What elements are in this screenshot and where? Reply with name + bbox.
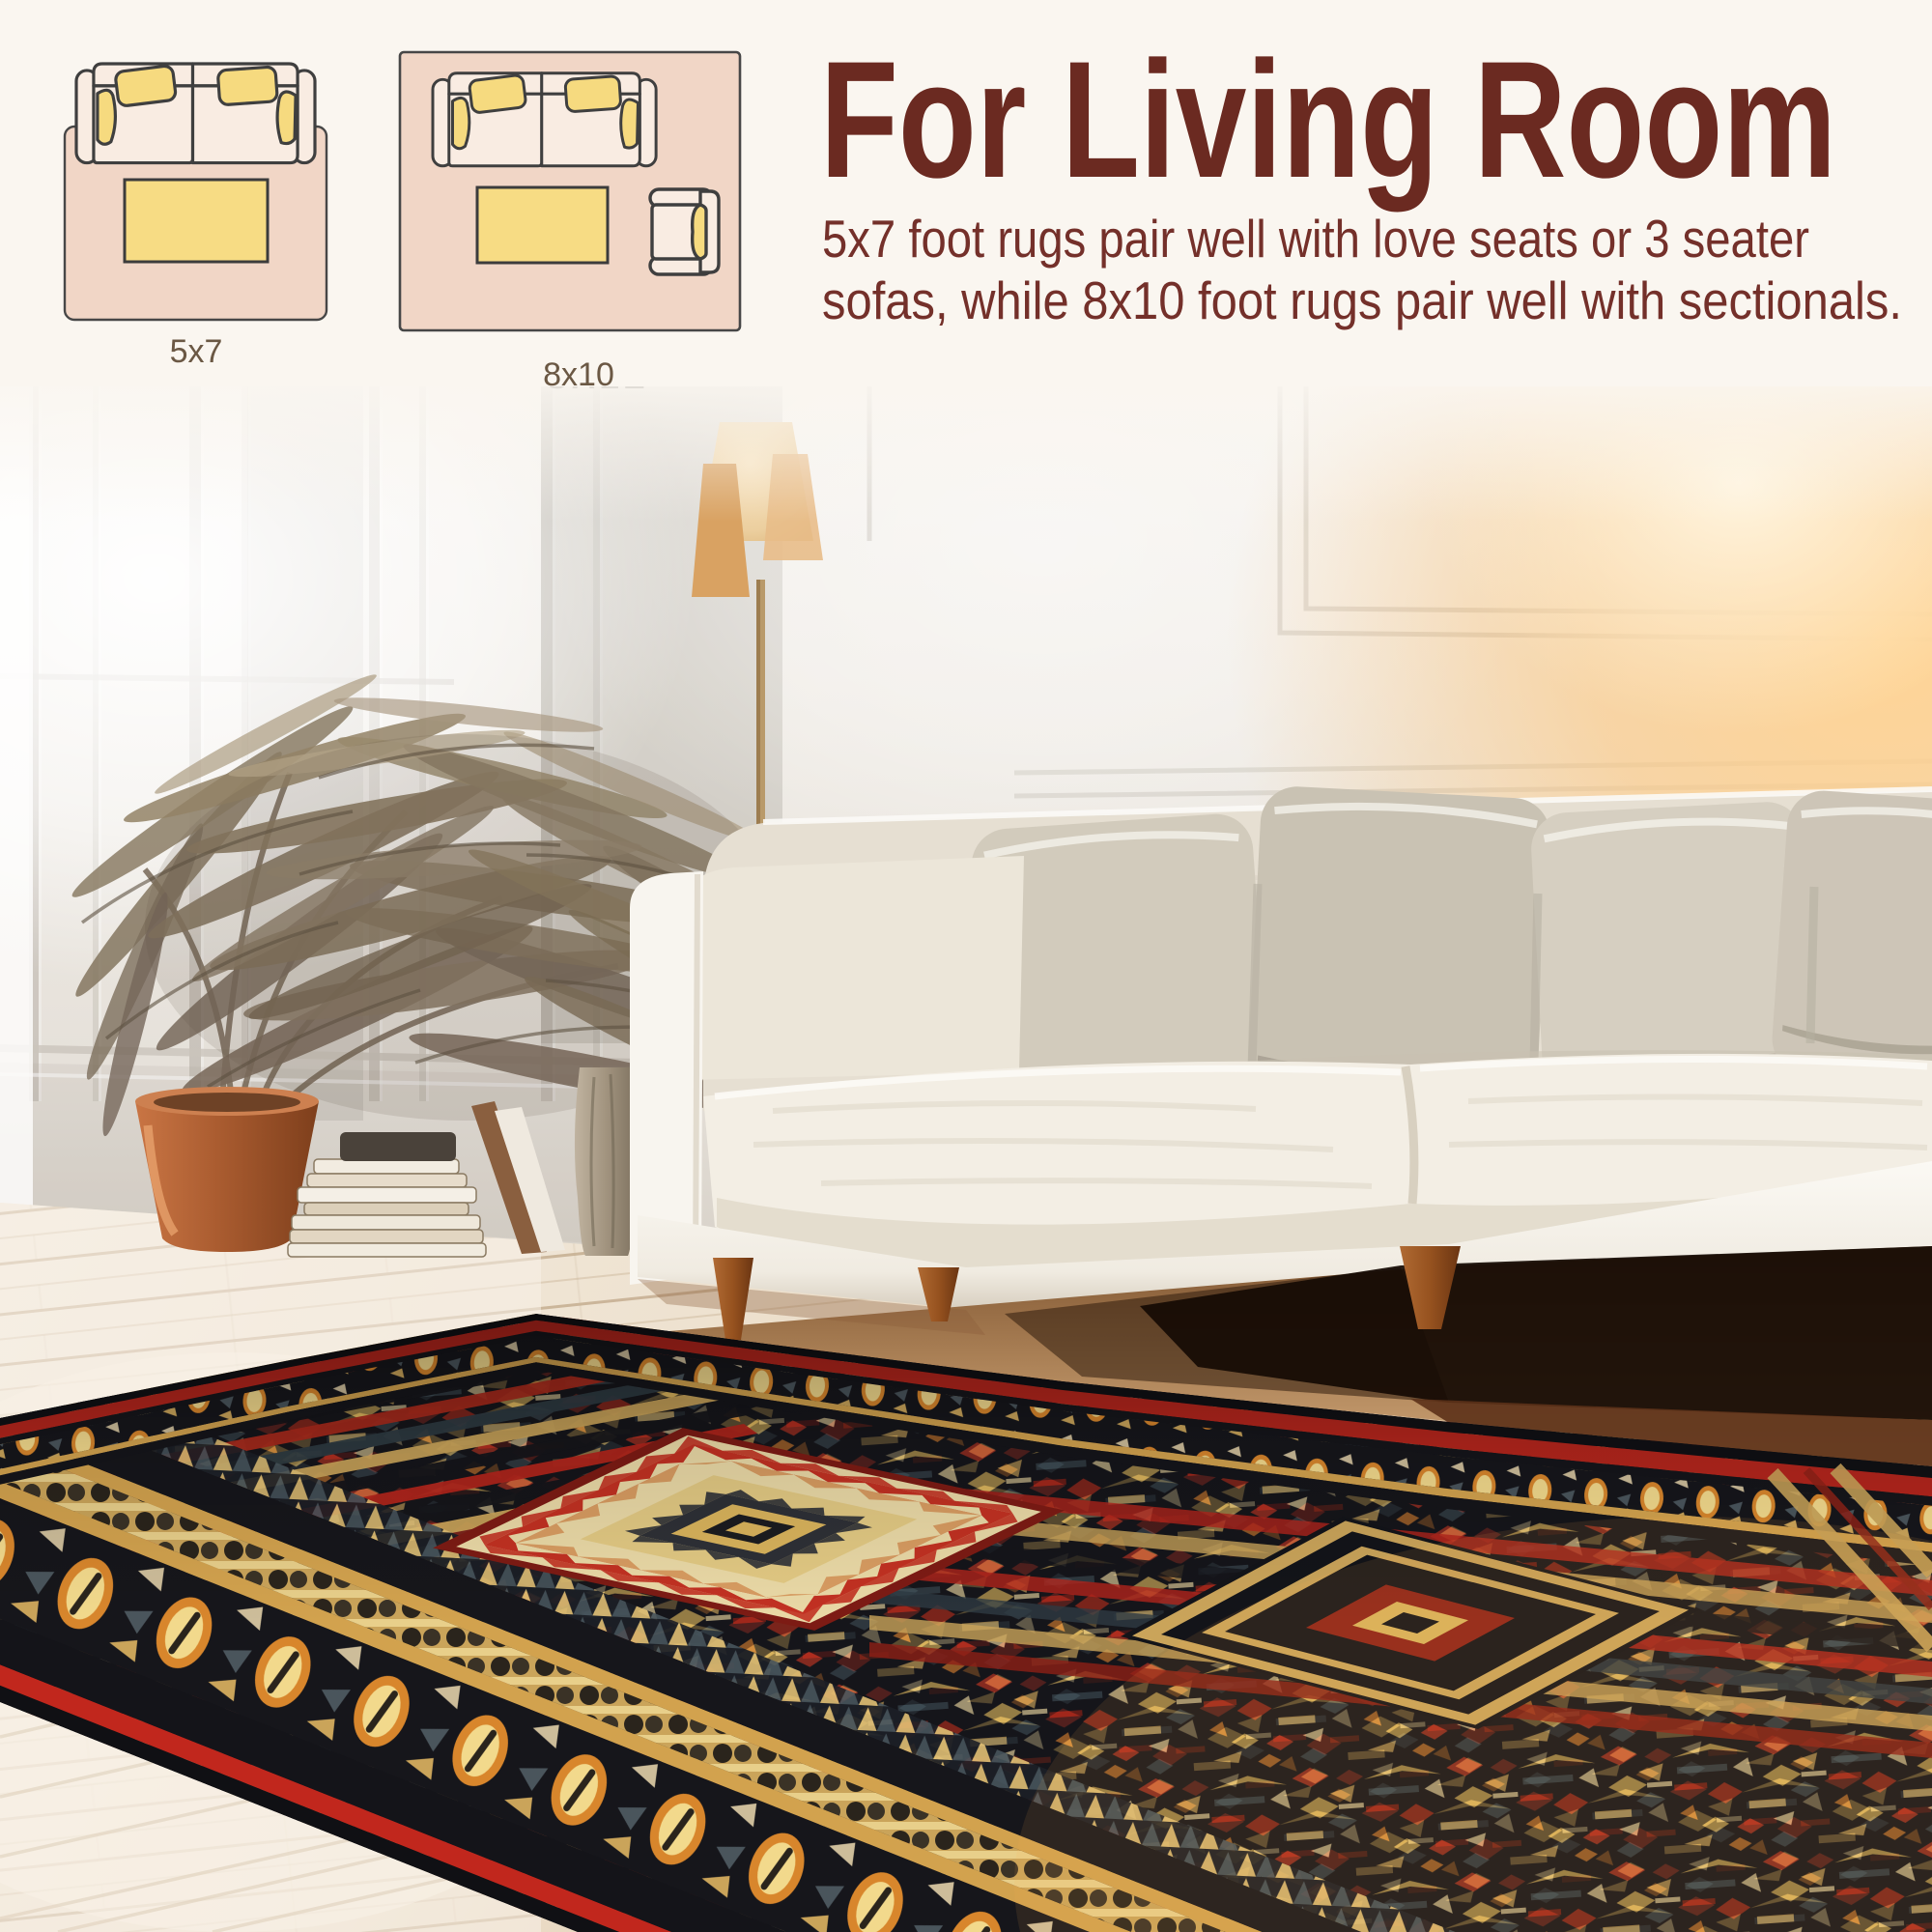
svg-text:sofas, while 8x10 foot rugs pa: sofas, while 8x10 foot rugs pair well wi… [822,270,1902,330]
svg-text:5x7: 5x7 [170,333,223,370]
svg-text:8x10: 8x10 [543,356,614,393]
svg-text:5x7 foot rugs pair well with l: 5x7 foot rugs pair well with love seats … [822,209,1809,269]
svg-text:For Living Room: For Living Room [820,27,1836,213]
